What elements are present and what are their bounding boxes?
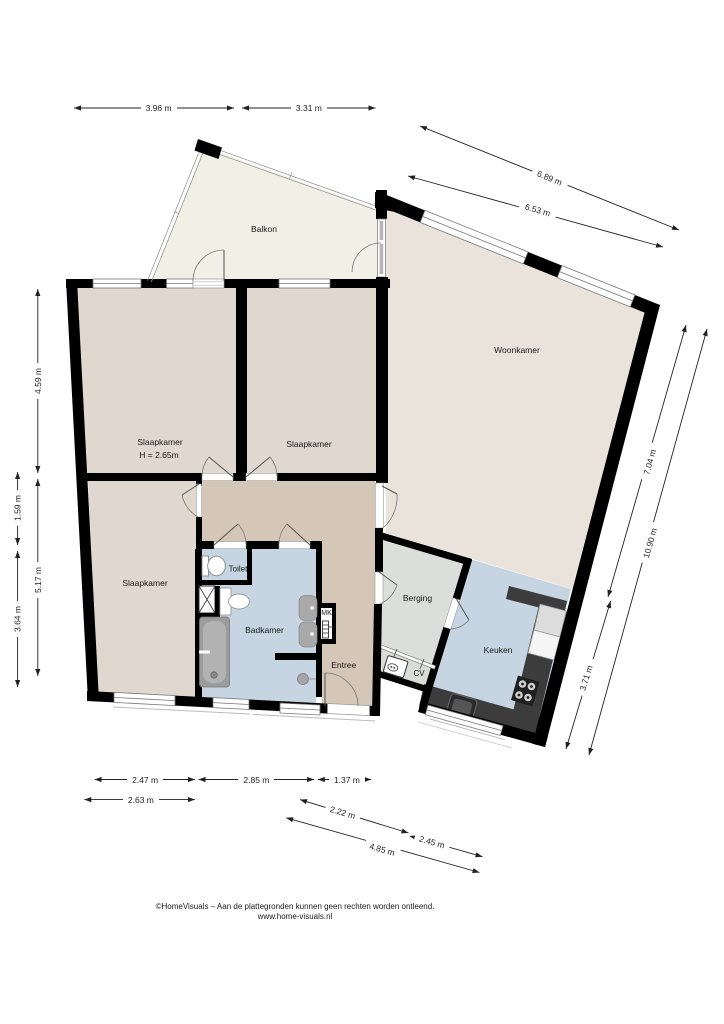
svg-text:Toilet: Toilet: [229, 565, 248, 574]
svg-text:2.85 m: 2.85 m: [243, 775, 269, 785]
svg-text:Slaapkamer: Slaapkamer: [122, 578, 168, 588]
svg-text:Keuken: Keuken: [484, 645, 513, 655]
svg-text:1.37 m: 1.37 m: [334, 775, 360, 785]
svg-text:Slaapkamer: Slaapkamer: [137, 437, 183, 447]
svg-text:2.63 m: 2.63 m: [128, 795, 154, 805]
svg-text:Woonkamer: Woonkamer: [494, 345, 540, 355]
svg-text:3.31 m: 3.31 m: [296, 103, 322, 113]
svg-text:CV: CV: [413, 669, 425, 678]
svg-text:©HomeVisuals – Aan de plattegr: ©HomeVisuals – Aan de plattegronden kunn…: [156, 902, 435, 911]
svg-text:Balkon: Balkon: [251, 224, 277, 234]
svg-text:MK: MK: [321, 610, 332, 617]
svg-text:5.17 m: 5.17 m: [33, 567, 43, 593]
svg-text:3.64 m: 3.64 m: [13, 606, 23, 632]
svg-text:www.home-visuals.nl: www.home-visuals.nl: [257, 912, 333, 921]
svg-text:Berging: Berging: [403, 593, 433, 603]
svg-text:2.47 m: 2.47 m: [132, 775, 158, 785]
svg-text:4.59 m: 4.59 m: [33, 368, 43, 394]
svg-text:Entree: Entree: [331, 660, 356, 670]
svg-text:Slaapkamer: Slaapkamer: [286, 439, 332, 449]
svg-text:Badkamer: Badkamer: [245, 625, 284, 635]
svg-text:1.59 m: 1.59 m: [13, 495, 23, 521]
svg-text:3.96 m: 3.96 m: [146, 103, 172, 113]
svg-text:H = 2.65m: H = 2.65m: [139, 450, 178, 460]
